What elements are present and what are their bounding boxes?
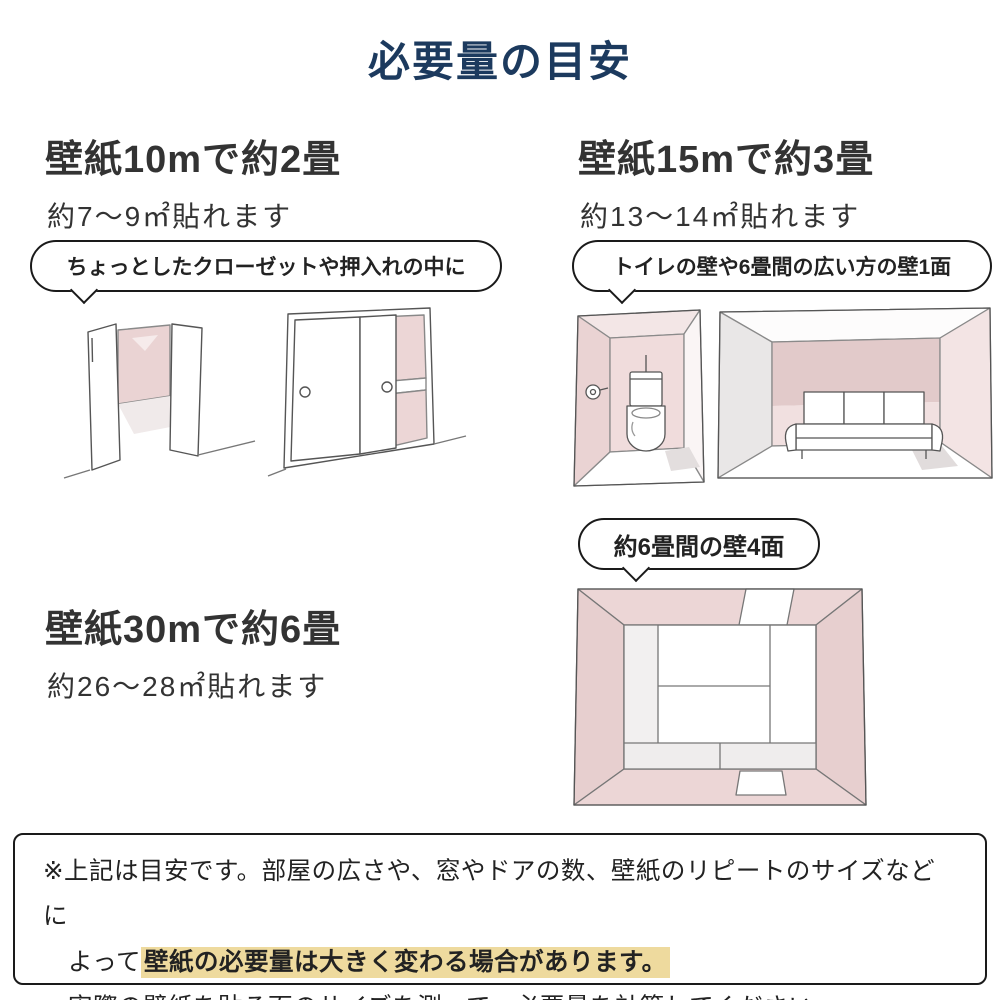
section-30m-bubble-label: 約6畳間の壁4面 [614,527,785,562]
sliding-closet-illustration [268,308,466,476]
sofa [785,392,942,459]
toilet-room-illustration [570,300,710,492]
open-closet-illustration [64,324,255,478]
section-10m-bubble: ちょっとしたクローゼットや押入れの中に [30,240,502,292]
section-15m: 壁紙15mで約3畳 約13〜14㎡貼れます [578,128,874,235]
section-10m: 壁紙10mで約2畳 約7〜9㎡貼れます [45,128,341,235]
section-15m-bubble: トイレの壁や6畳間の広い方の壁1面 [572,240,992,292]
section-10m-heading: 壁紙10mで約2畳 [45,128,341,183]
note-box: ※上記は目安です。部屋の広さや、窓やドアの数、壁紙のリピートのサイズなどに よっ… [13,833,987,985]
section-30m: 壁紙30mで約6畳 約26〜28㎡貼れます [45,598,341,705]
top-door-opening [739,589,794,625]
page-title: 必要量の目安 [0,28,1000,89]
section-15m-heading: 壁紙15mで約3畳 [578,128,874,183]
bottom-door-opening [736,771,786,795]
section-15m-subheading: 約13〜14㎡貼れます [580,195,874,235]
section-30m-subheading: 約26〜28㎡貼れます [47,665,341,705]
section-30m-bubble: 約6畳間の壁4面 [578,518,820,570]
wallpaper-quantity-guide: 必要量の目安 壁紙10mで約2畳 約7〜9㎡貼れます ちょっとしたクローゼットや… [0,0,1000,1000]
note-highlight: 壁紙の必要量は大きく変わる場合があります。 [141,947,670,978]
note-line-2: よって壁紙の必要量は大きく変わる場合があります。 [43,940,957,985]
section-10m-subheading: 約7〜9㎡貼れます [47,195,341,235]
closet-illustrations [48,298,468,503]
section-15m-bubble-label: トイレの壁や6畳間の広い方の壁1面 [613,251,951,281]
note-line-1: ※上記は目安です。部屋の広さや、窓やドアの数、壁紙のリピートのサイズなどに [43,849,957,940]
tatami-room-illustration [570,583,870,811]
section-10m-bubble-label: ちょっとしたクローゼットや押入れの中に [67,251,466,281]
section-30m-heading: 壁紙30mで約6畳 [45,598,341,653]
sofa-room-illustration [716,300,994,485]
note-line-3: 実際の壁紙を貼る面のサイズを測って、必要量を計算してください。 [43,985,957,1000]
